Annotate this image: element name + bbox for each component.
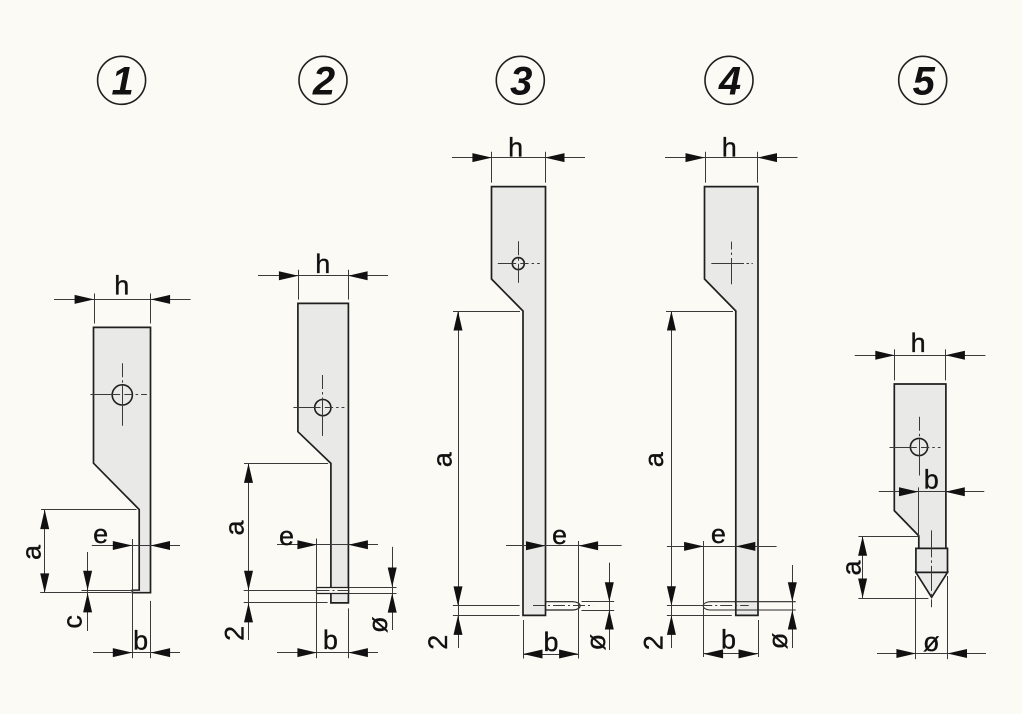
svg-text:e: e xyxy=(93,519,108,549)
svg-text:a: a xyxy=(837,560,867,576)
svg-text:4: 4 xyxy=(718,59,741,103)
svg-text:h: h xyxy=(114,271,129,301)
svg-text:e: e xyxy=(711,519,726,549)
svg-text:2: 2 xyxy=(423,635,453,650)
svg-text:ø: ø xyxy=(581,634,611,651)
svg-text:ø: ø xyxy=(763,633,793,650)
svg-text:3: 3 xyxy=(510,59,532,103)
svg-text:h: h xyxy=(911,328,926,358)
svg-text:ø: ø xyxy=(923,627,940,657)
svg-text:b: b xyxy=(133,626,148,656)
svg-text:5: 5 xyxy=(913,59,936,103)
svg-text:b: b xyxy=(924,465,939,495)
svg-text:e: e xyxy=(552,520,567,550)
svg-text:c: c xyxy=(57,615,87,629)
svg-text:b: b xyxy=(323,625,338,655)
svg-text:b: b xyxy=(721,625,736,655)
svg-text:2: 2 xyxy=(312,59,335,103)
svg-text:2: 2 xyxy=(219,626,249,641)
svg-text:a: a xyxy=(427,451,457,467)
svg-text:h: h xyxy=(315,249,330,279)
svg-text:1: 1 xyxy=(111,59,133,103)
svg-text:h: h xyxy=(508,133,523,163)
svg-text:b: b xyxy=(543,627,558,657)
svg-text:ø: ø xyxy=(363,617,393,634)
svg-text:a: a xyxy=(220,520,250,536)
svg-text:e: e xyxy=(279,521,294,551)
svg-text:2: 2 xyxy=(638,635,668,650)
svg-text:h: h xyxy=(722,133,737,163)
svg-text:a: a xyxy=(639,451,669,467)
svg-text:a: a xyxy=(16,544,46,560)
